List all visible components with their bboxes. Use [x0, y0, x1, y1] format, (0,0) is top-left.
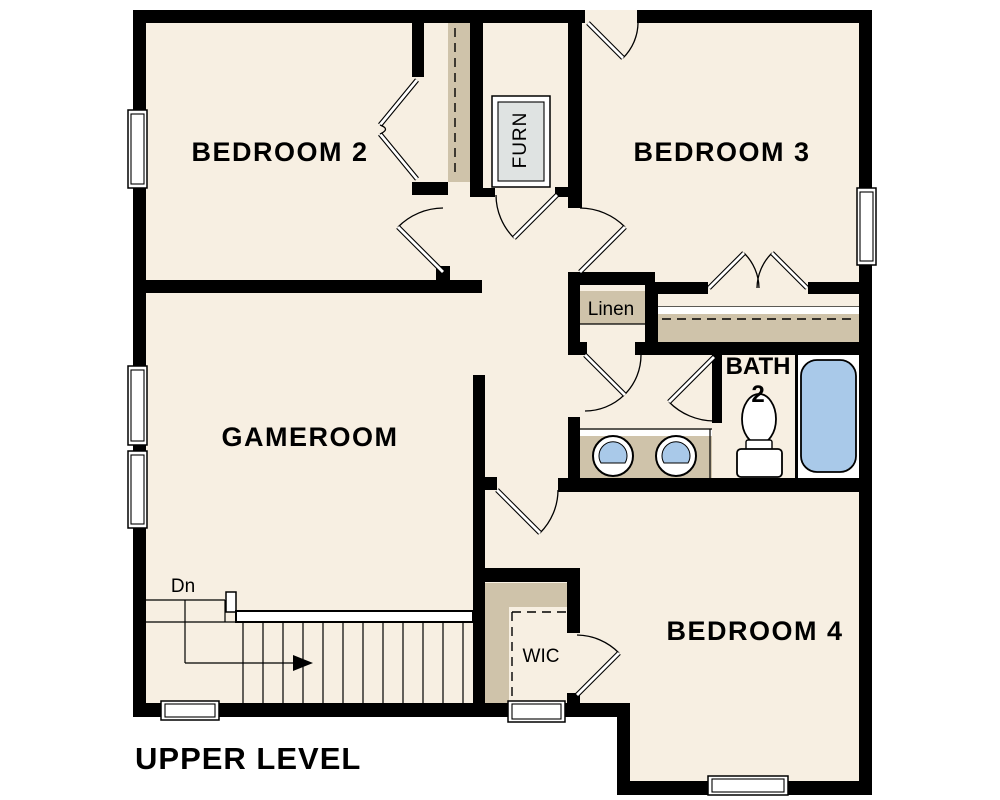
plan-title: UPPER LEVEL	[135, 741, 361, 776]
stair-railing	[236, 611, 473, 622]
label-wic: WIC	[523, 646, 560, 667]
window-bedroom4-bottom	[708, 776, 788, 795]
bedroom3-closet-shelf	[658, 314, 859, 342]
window-bedroom2-left	[128, 110, 147, 188]
label-bath2-line1: BATH	[726, 353, 791, 380]
floor-plan-page: BEDROOM 2 BEDROOM 3 GAMEROOM BEDROOM 4 B…	[0, 0, 1000, 800]
window-gameroom-upper	[128, 366, 147, 445]
label-bedroom2: BEDROOM 2	[191, 137, 368, 167]
label-gameroom: GAMEROOM	[222, 422, 399, 452]
window-stairs-bottom	[161, 701, 219, 720]
floor-plan-svg: BEDROOM 2 BEDROOM 3 GAMEROOM BEDROOM 4 B…	[0, 0, 1000, 800]
label-furnace: FURN	[510, 112, 531, 169]
window-bedroom3-right	[857, 188, 876, 265]
sink-left	[593, 436, 633, 476]
label-bedroom3: BEDROOM 3	[633, 137, 810, 167]
bedroom2-closet-shelf	[448, 23, 470, 182]
stair-rail-post	[226, 592, 236, 612]
label-bedroom4: BEDROOM 4	[666, 616, 843, 646]
label-linen: Linen	[588, 299, 635, 320]
window-gameroom-lower	[128, 451, 147, 528]
bathtub	[801, 360, 856, 472]
label-bath2-line2: 2	[751, 381, 764, 408]
window-wic-bottom	[508, 701, 565, 722]
label-stairs-dn: Dn	[171, 576, 195, 597]
wic-shelf-left	[483, 583, 509, 703]
sink-right	[656, 436, 696, 476]
